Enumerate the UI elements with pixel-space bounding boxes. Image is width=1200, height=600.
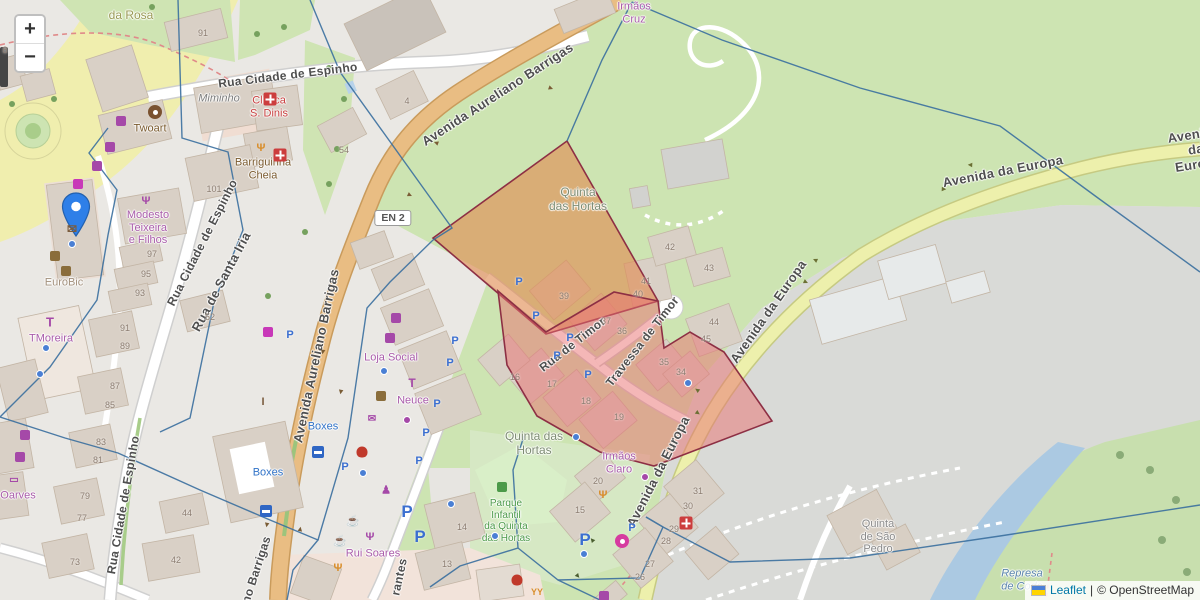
mail-icon: ✉ (368, 414, 376, 425)
house-number: 89 (120, 341, 130, 351)
zoom-out-button[interactable]: − (16, 43, 44, 71)
house-number: 101 (206, 184, 221, 194)
post-office-icon: ✉ (67, 222, 77, 236)
house-number: 4 (404, 96, 409, 106)
street-label: Avenida da Europa (1167, 124, 1200, 176)
place-label: Parque Infantil da Quinta das Hortas (482, 498, 530, 544)
parking-icon: P (579, 530, 590, 550)
poi-dot (580, 550, 588, 558)
street-label: Travessa de Timor (604, 294, 683, 389)
house-number: 42 (665, 242, 675, 252)
restaurant-icon: Ψ (366, 531, 375, 543)
atm-icon (61, 266, 71, 276)
paint-roller-icon: T (46, 315, 54, 330)
poi-dot (641, 473, 649, 481)
place-label: Clínica S. Dinis (250, 94, 288, 119)
house-number: 54 (339, 145, 349, 155)
house-number: 42 (171, 555, 181, 565)
street-label: Avenida da Europa (728, 258, 810, 367)
poi-dot (42, 344, 50, 352)
place-label: Quinta das Hortas (505, 430, 563, 458)
parking-icon: P (584, 369, 591, 381)
shop-icon (105, 142, 115, 152)
house-number: 85 (105, 400, 115, 410)
playground-icon (497, 482, 507, 492)
parking-icon: P (401, 502, 412, 522)
poi-dot (36, 370, 44, 378)
parking-icon: P (553, 350, 560, 362)
wine-glasses-icon: YY (531, 587, 543, 597)
place-label: Oarves (0, 490, 35, 503)
parking-icon: P (286, 329, 293, 341)
handbag-icon (385, 333, 395, 343)
road-shield-en2: EN 2 (374, 210, 411, 226)
house-number: 19 (614, 412, 624, 422)
parking-icon: P (415, 455, 422, 467)
parking-icon: P (341, 461, 348, 473)
sofa-icon: ▭ (9, 475, 18, 486)
bus-stop-icon (312, 446, 324, 458)
poi-dot (380, 367, 388, 375)
house-number: 18 (581, 396, 591, 406)
restaurant-icon: Ψ (599, 489, 608, 501)
attribution-separator: | (1090, 583, 1093, 597)
oneway-arrow: ▸ (335, 389, 347, 395)
house-number: 43 (704, 263, 714, 273)
place-label: Quinta de São Pedro (861, 518, 896, 556)
poi-dot (447, 500, 455, 508)
place-label: Barriguinha Cheia (235, 156, 291, 181)
street-label: Rua Cidade de Espinho (105, 435, 143, 576)
leaflet-link[interactable]: Leaflet (1050, 583, 1086, 597)
pharmacy-cross-icon (680, 517, 693, 530)
artist-palette-icon (148, 105, 162, 119)
place-label: Quinta das Hortas (549, 186, 607, 214)
house-number: 41 (641, 276, 651, 286)
house-number: 44 (709, 317, 719, 327)
house-number: 16 (510, 372, 520, 382)
house-number: 83 (96, 437, 106, 447)
house-number: 81 (93, 455, 103, 465)
bus-stop-icon (260, 505, 272, 517)
car-shop-icon (263, 327, 273, 337)
parking-icon: P (433, 398, 440, 410)
attribution-bar: Leaflet | © OpenStreetMap (1025, 581, 1200, 600)
parking-icon: P (532, 310, 539, 322)
cafe-icon: ☕ (333, 535, 347, 548)
street-label: Rua de Santa Iria (189, 230, 254, 335)
factory-icon (391, 313, 401, 323)
restaurant-icon: Ψ (257, 142, 266, 154)
dentist-tooth-icon (357, 447, 368, 458)
paint-roller-icon: T (408, 376, 415, 390)
house-number: 29 (669, 524, 679, 534)
clothes-shop-icon (116, 116, 126, 126)
house-number: 73 (70, 557, 80, 567)
place-label: Modesto Teixeira e Filhos (127, 209, 169, 247)
house-number: 31 (693, 486, 703, 496)
place-label: Twoart (133, 123, 166, 136)
oneway-arrow: ▸ (586, 535, 597, 546)
street-label: no Barrigas (240, 535, 275, 600)
place-label: da Rosa (109, 9, 154, 23)
oneway-arrow: ▸ (811, 254, 820, 266)
awning-icon (15, 452, 25, 462)
oneway-arrow: ▸ (406, 189, 415, 201)
parking-icon: P (566, 332, 573, 344)
oneway-arrow: ▸ (572, 571, 583, 582)
restaurant-icon: Ψ (142, 195, 151, 207)
street-label: Avenida da Europa (625, 414, 694, 530)
ukraine-flag-icon (1031, 585, 1046, 596)
house-number: 8 (2, 45, 7, 55)
house-number: 15 (575, 505, 585, 515)
house-number: 44 (182, 508, 192, 518)
house-number: 97 (147, 249, 157, 259)
place-label: Boxes (253, 467, 284, 480)
house-number: 13 (442, 559, 452, 569)
oneway-arrow: ▸ (967, 159, 972, 170)
poi-dot (491, 532, 499, 540)
street-label: rantes (389, 557, 410, 597)
oneway-arrow: ▸ (547, 82, 555, 94)
oneway-arrow: ▸ (941, 183, 946, 194)
house-number: 39 (559, 291, 569, 301)
cafe-icon: ☕ (346, 515, 360, 528)
house-number: 30 (683, 501, 693, 511)
house-number: 20 (593, 476, 603, 486)
street-label: Rua de Timor (537, 315, 609, 375)
oneway-arrow: ▸ (261, 522, 273, 528)
osm-attribution: © OpenStreetMap (1097, 583, 1194, 597)
poi-dot (68, 240, 76, 248)
poi-dot (403, 416, 411, 424)
house-number: 52 (205, 312, 215, 322)
street-label: Avenida Aureliano Barrigas (420, 40, 577, 149)
awning-icon (20, 430, 30, 440)
bank-icon (50, 251, 60, 261)
theatre-masks-icon (376, 391, 386, 401)
house-number: 34 (676, 367, 686, 377)
bench-icon: I (261, 396, 264, 408)
phone-shop-icon (615, 534, 629, 548)
house-number: 37 (601, 316, 611, 326)
house-number: 17 (547, 379, 557, 389)
place-label: Rui Soares (346, 548, 400, 561)
oneway-arrow: ▸ (432, 137, 440, 149)
street-label: Avenida da Europa (942, 153, 1065, 191)
house-number: 27 (645, 559, 655, 569)
house-number: 91 (120, 323, 130, 333)
house-number: 45 (701, 334, 711, 344)
street-label: Avenida Aureliano Barrigas (291, 268, 342, 445)
parking-icon: P (414, 527, 425, 547)
parking-icon: P (422, 427, 429, 439)
place-label: Boxes (308, 421, 339, 434)
house-number: 35 (659, 357, 669, 367)
house-number: 40 (633, 289, 643, 299)
house-number: 14 (457, 522, 467, 532)
house-number: 95 (141, 269, 151, 279)
parking-icon: P (515, 276, 522, 288)
street-label: Rua Cidade de Espinho (165, 177, 241, 308)
house-number: 91 (198, 28, 208, 38)
zoom-control: + − (14, 14, 46, 73)
games-icon: ♟ (381, 484, 391, 497)
oneway-arrow: ▸ (317, 349, 329, 355)
department-store-icon (73, 179, 83, 189)
shop-icon (599, 591, 609, 600)
dentist-tooth-icon (512, 575, 523, 586)
poi-dot (684, 379, 692, 387)
map-canvas[interactable]: Rua de Santa IriaRua Cidade de EspinhoRu… (0, 0, 1200, 600)
street-label: Rua Cidade de Espinho (218, 61, 359, 92)
shop-icon (92, 161, 102, 171)
oneway-arrow: ▸ (693, 407, 703, 419)
oneway-arrow: ▸ (692, 384, 702, 396)
clinic-cross-icon (264, 93, 277, 106)
parking-icon: P (451, 335, 458, 347)
place-label: Irmãos Claro (602, 450, 636, 475)
house-number: 77 (77, 513, 87, 523)
place-label: Loja Social (364, 352, 418, 365)
place-label: Neuce (397, 395, 429, 408)
house-number: 36 (617, 326, 627, 336)
oneway-arrow: ▸ (802, 276, 811, 288)
poi-dot (359, 469, 367, 477)
zoom-in-button[interactable]: + (16, 16, 44, 43)
oneway-arrow: ▸ (294, 526, 306, 532)
place-label: Miminho (198, 93, 240, 106)
clinic-cross-icon (274, 149, 287, 162)
restaurant-icon: Ψ (334, 562, 343, 574)
house-number: 26 (635, 572, 645, 582)
house-number: 93 (135, 288, 145, 298)
house-number: 87 (110, 381, 120, 391)
place-label: EuroBic (45, 277, 84, 290)
poi-dot (572, 433, 580, 441)
house-number: 79 (80, 491, 90, 501)
house-number: 28 (661, 536, 671, 546)
parking-icon: P (628, 522, 635, 534)
place-label: TMoreira (29, 333, 73, 346)
poi-label-layer: Rua de Santa IriaRua Cidade de EspinhoRu… (0, 0, 1200, 600)
parking-icon: P (446, 357, 453, 369)
place-label: Irmãos Cruz (617, 0, 651, 25)
